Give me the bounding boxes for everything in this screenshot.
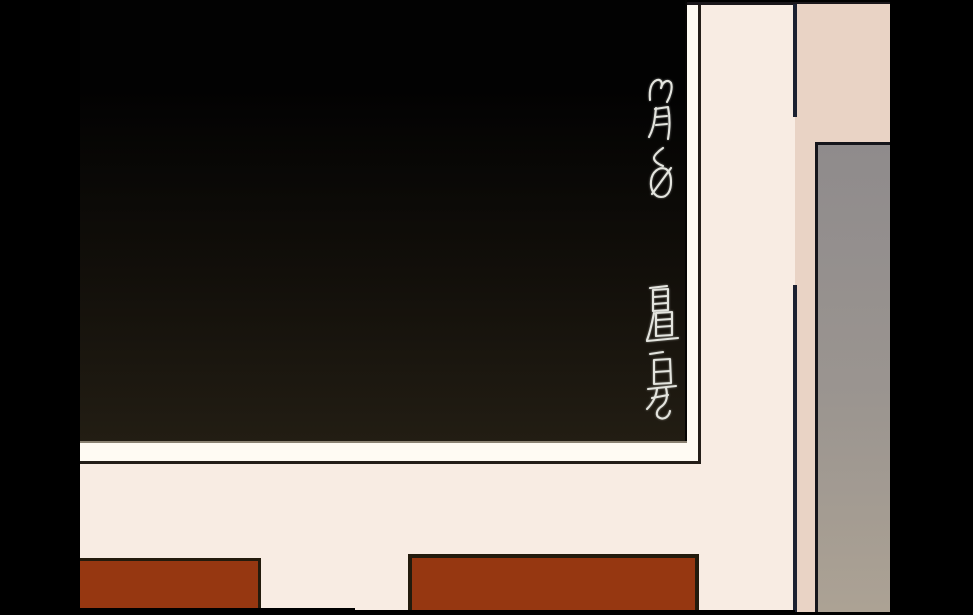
letterbox-right-bar bbox=[890, 0, 973, 615]
wall-corner-line-lower bbox=[793, 285, 797, 612]
blackboard-frame-right bbox=[687, 2, 698, 463]
floor-shadow-step bbox=[80, 608, 355, 611]
classroom-scene bbox=[0, 0, 973, 615]
blackboard-surface bbox=[80, 0, 685, 441]
blackboard-frame-bottom bbox=[80, 443, 698, 461]
desk-right bbox=[408, 554, 699, 612]
front-wall-column bbox=[701, 4, 795, 610]
wall-corner-line-upper bbox=[793, 4, 797, 117]
door-panel bbox=[815, 142, 890, 612]
desk-left bbox=[80, 558, 261, 612]
letterbox-left-bar bbox=[0, 0, 80, 615]
